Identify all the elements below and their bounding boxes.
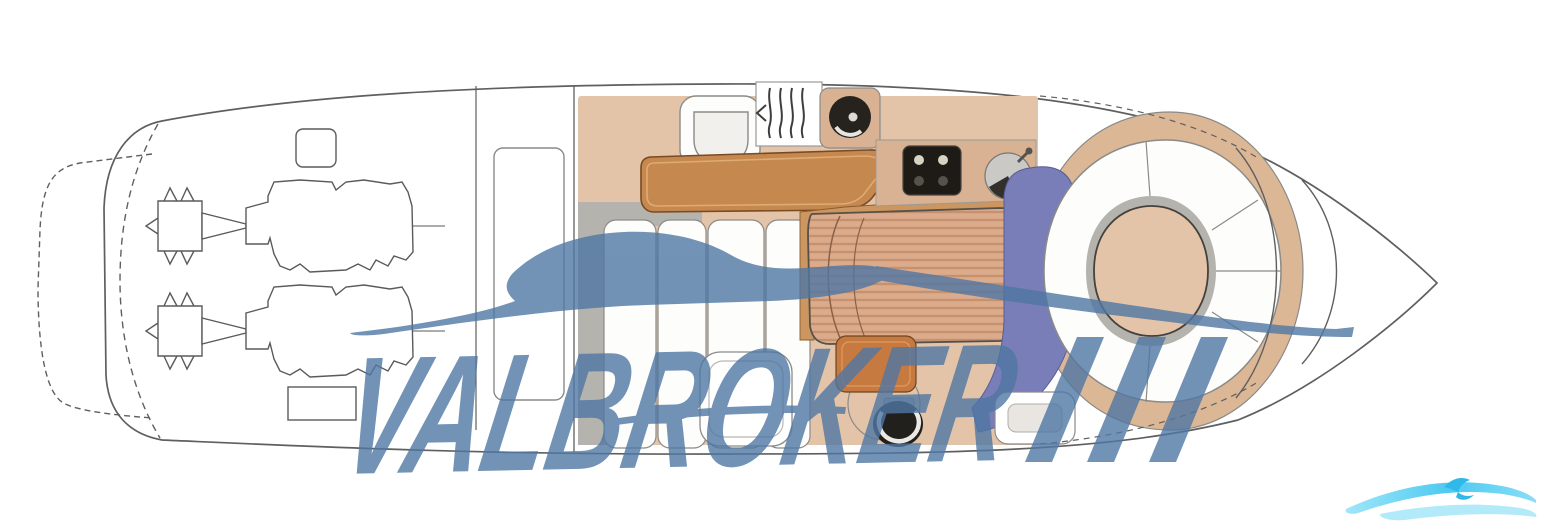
boat-floorplan-diagram: VALBROKER [0, 0, 1560, 527]
wave-logo [1346, 478, 1537, 520]
deck-hatch [296, 129, 336, 167]
burner-icon [938, 155, 948, 165]
floorplan-canvas: VALBROKER [0, 0, 1560, 527]
faucet-base [1026, 148, 1033, 155]
port-engine [146, 180, 445, 272]
companionway-panel [756, 82, 822, 146]
sink-drain [849, 113, 858, 122]
stove [903, 146, 961, 195]
burner-icon [914, 155, 924, 165]
wave-swoosh-lower [1380, 505, 1536, 521]
watermark-brand-text: VALBROKER [329, 309, 1031, 510]
burner-icon [938, 176, 948, 186]
stern-locker [288, 387, 356, 420]
burner-icon [914, 176, 924, 186]
